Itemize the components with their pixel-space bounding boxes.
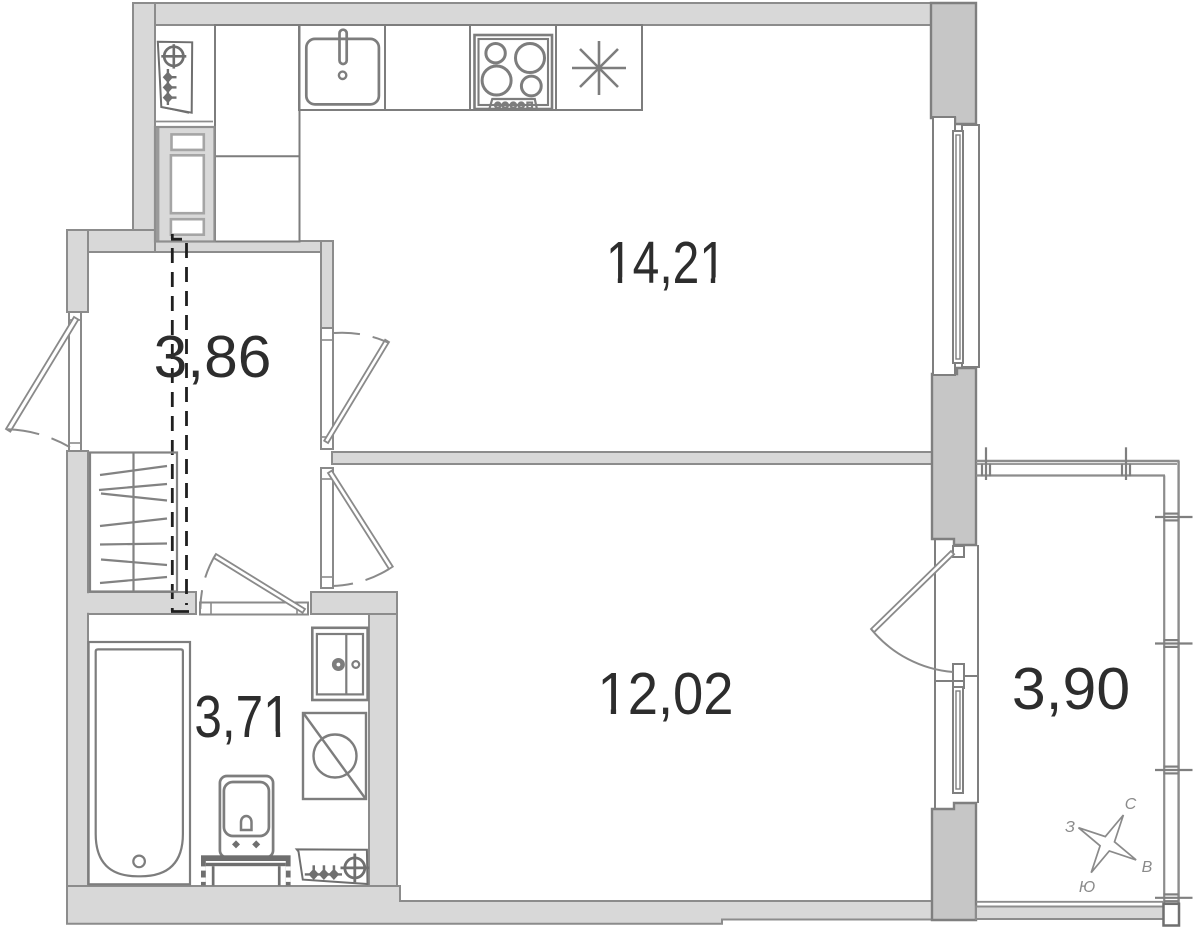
svg-text:3,86: 3,86 [154,324,272,390]
svg-text:14,21: 14,21 [606,230,726,296]
svg-text:З: З [1065,819,1075,836]
svg-text:С: С [1125,796,1137,813]
svg-text:3,90: 3,90 [1012,656,1130,722]
svg-text:3,71: 3,71 [194,684,290,750]
svg-text:Ю: Ю [1079,879,1095,896]
svg-text:В: В [1142,859,1153,876]
svg-text:12,02: 12,02 [597,662,733,728]
